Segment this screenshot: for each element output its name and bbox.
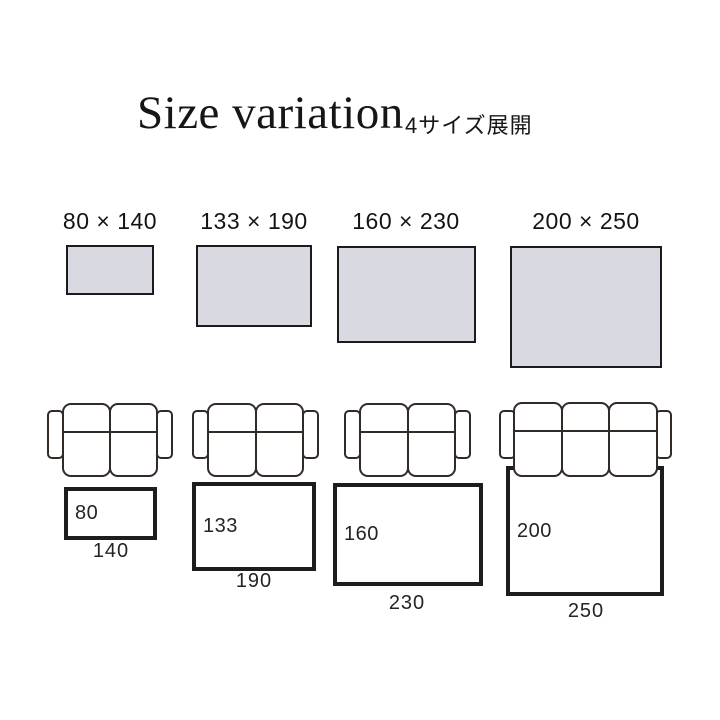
sofa-3seat-top-view <box>499 402 672 477</box>
sofa-cushions <box>513 402 658 477</box>
sofa-cushion <box>608 402 658 477</box>
rug-width-label: 190 <box>236 570 272 593</box>
page-title: Size variation <box>137 90 404 137</box>
rug-depth-label: 80 <box>68 502 98 525</box>
sofa-2seat-top-view <box>344 403 471 477</box>
sofa-backrest-line <box>515 430 656 432</box>
size-label-80x140: 80 × 140 <box>63 208 157 235</box>
size-swatch-80x140 <box>66 245 154 295</box>
sofa-cushion <box>359 403 409 477</box>
rug-outline-160x230: 160 <box>333 483 483 586</box>
sofa-backrest-line <box>209 431 302 433</box>
size-swatch-133x190 <box>196 245 312 327</box>
rug-width-label: 250 <box>568 600 604 623</box>
size-label-133x190: 133 × 190 <box>200 208 307 235</box>
size-label-160x230: 160 × 230 <box>352 208 459 235</box>
sofa-cushion <box>255 403 305 477</box>
sofa-right-armrest <box>302 410 319 459</box>
rug-depth-label: 200 <box>510 520 552 543</box>
sofa-cushion <box>207 403 257 477</box>
sofa-cushions <box>62 403 158 477</box>
sofa-cushion <box>109 403 158 477</box>
sofa-2seat-top-view <box>47 403 173 477</box>
size-swatch-160x230 <box>337 246 476 343</box>
sofa-2seat-top-view <box>192 403 319 477</box>
rug-outline-200x250: 200 <box>506 466 664 596</box>
rug-depth-label: 133 <box>196 515 238 538</box>
sofa-cushions <box>207 403 304 477</box>
sofa-cushions <box>359 403 456 477</box>
size-variation-figure: Size variation 4サイズ展開 80 × 140 133 × 190… <box>0 0 720 720</box>
size-swatch-200x250 <box>510 246 662 368</box>
sofa-cushion <box>513 402 563 477</box>
sofa-cushion <box>62 403 111 477</box>
sofa-right-armrest <box>454 410 471 459</box>
sofa-backrest-line <box>64 431 156 433</box>
sofa-cushion <box>407 403 457 477</box>
sofa-cushion <box>561 402 611 477</box>
rug-width-label: 140 <box>93 540 129 563</box>
rug-outline-133x190: 133 <box>192 482 316 571</box>
size-label-200x250: 200 × 250 <box>532 208 639 235</box>
sofa-right-armrest <box>156 410 173 459</box>
page-subtitle: 4サイズ展開 <box>405 108 533 140</box>
rug-depth-label: 160 <box>337 523 379 546</box>
sofa-backrest-line <box>361 431 454 433</box>
rug-outline-80x140: 80 <box>64 487 157 540</box>
rug-width-label: 230 <box>389 592 425 615</box>
